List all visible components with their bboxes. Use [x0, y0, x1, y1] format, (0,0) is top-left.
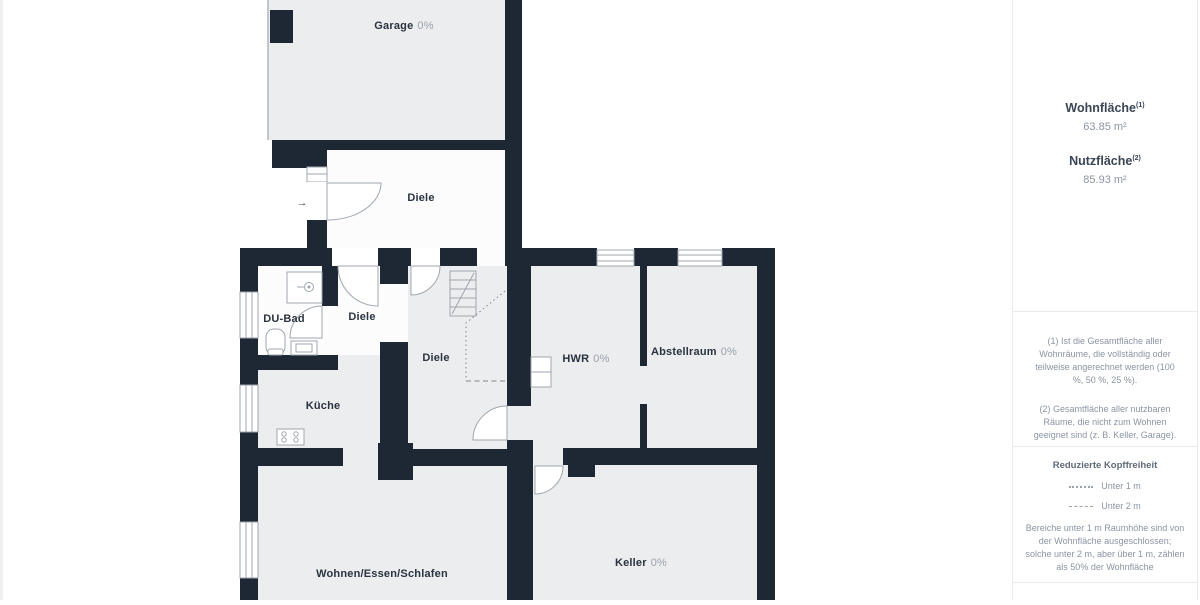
footnotes-section: (1) Ist die Gesamtfläche aller Wohnräume…: [1013, 312, 1197, 447]
label-kueche: Küche: [306, 400, 341, 412]
toilet-icon: [266, 329, 285, 355]
wall: [240, 432, 258, 522]
stove-icon: [277, 429, 304, 445]
wall: [322, 266, 338, 306]
wohnflaeche-block: Wohnfläche(1) 63.85 m²: [1013, 98, 1197, 134]
shower-icon: [287, 272, 322, 303]
wall: [240, 266, 258, 292]
label-garage: Garage0%: [374, 20, 433, 32]
entrance-arrow-icon: →: [297, 197, 308, 209]
legend-under-1m: Unter 1 m: [1025, 481, 1185, 492]
floorplan: Garage0% Diele DU-Bad Diele Diele Küche …: [0, 0, 1000, 600]
wall: [440, 248, 477, 266]
label-keller: Keller0%: [615, 557, 667, 569]
window: [240, 292, 258, 338]
wall: [563, 448, 757, 465]
label-diele-mid: Diele: [422, 352, 449, 364]
floorplan-page: { "plan": { "rooms": [ {"name": "Garage"…: [0, 0, 1200, 600]
nutzflaeche-value: 85.93 m²: [1013, 173, 1197, 187]
wall: [634, 248, 678, 266]
wall: [380, 266, 408, 284]
wall: [640, 404, 647, 448]
label-wohnen: Wohnen/Essen/Schlafen: [316, 568, 448, 580]
nutzflaeche-label: Nutzfläche(2): [1013, 151, 1197, 169]
window: [597, 250, 634, 266]
floorplan-svg: Garage0% Diele DU-Bad Diele Diele Küche …: [0, 0, 1000, 600]
wall: [505, 0, 522, 248]
wall: [505, 248, 597, 266]
entrance-sidelight: [307, 167, 327, 182]
wall: [507, 266, 531, 406]
wall: [722, 248, 775, 266]
window: [678, 250, 722, 266]
wall: [258, 448, 343, 466]
dotted-line-icon: [1069, 486, 1093, 488]
wall: [240, 578, 258, 600]
headroom-title: Reduzierte Kopffreiheit: [1025, 459, 1185, 472]
nutzflaeche-block: Nutzfläche(2) 85.93 m²: [1013, 151, 1197, 187]
wall: [757, 266, 775, 600]
dashed-line-icon: [1069, 506, 1093, 507]
label-diele-small: Diele: [348, 311, 375, 323]
label-dubad: DU-Bad: [263, 313, 305, 325]
window: [240, 522, 258, 578]
footnote-1: (1) Ist die Gesamtfläche aller Wohnräume…: [1029, 335, 1181, 387]
window: [240, 385, 258, 432]
wall: [640, 266, 647, 366]
wohnflaeche-label: Wohnfläche(1): [1013, 98, 1197, 116]
footnote-marker: (2): [1132, 155, 1141, 162]
label-diele-upper: Diele: [407, 192, 434, 204]
legend-under-1m-label: Unter 1 m: [1101, 481, 1141, 492]
headroom-note: Bereiche unter 1 m Raumhöhe sind von der…: [1025, 522, 1185, 574]
label-hwr: HWR0%: [562, 353, 609, 365]
stairwell-gap: [477, 248, 505, 266]
wall: [240, 338, 258, 385]
wall: [507, 440, 533, 600]
label-abstellraum: Abstellraum0%: [651, 346, 737, 358]
headroom-legend-section: Reduzierte Kopffreiheit Unter 1 m Unter …: [1013, 447, 1197, 583]
boiler-icon: [531, 357, 551, 387]
wall: [378, 443, 413, 480]
wall: [240, 248, 332, 266]
area-summary-section: Wohnfläche(1) 63.85 m² Nutzfläche(2) 85.…: [1013, 0, 1197, 312]
wohnflaeche-value: 63.85 m²: [1013, 120, 1197, 134]
wall: [307, 220, 327, 248]
info-sidebar: Wohnfläche(1) 63.85 m² Nutzfläche(2) 85.…: [1012, 0, 1198, 600]
legend-under-2m-label: Unter 2 m: [1101, 501, 1141, 512]
wall: [258, 355, 338, 370]
wall: [270, 10, 293, 43]
wall: [272, 140, 327, 168]
sink-icon: [291, 341, 317, 355]
legend-under-2m: Unter 2 m: [1025, 501, 1185, 512]
footnote-2: (2) Gesamtfläche aller nutzbaren Räume, …: [1029, 403, 1181, 442]
sidebar-footer-spacer: [1013, 583, 1197, 600]
wall: [380, 342, 408, 448]
wall: [413, 449, 507, 466]
footnote-marker: (1): [1136, 102, 1145, 109]
wall: [568, 465, 595, 477]
wall: [378, 248, 411, 266]
